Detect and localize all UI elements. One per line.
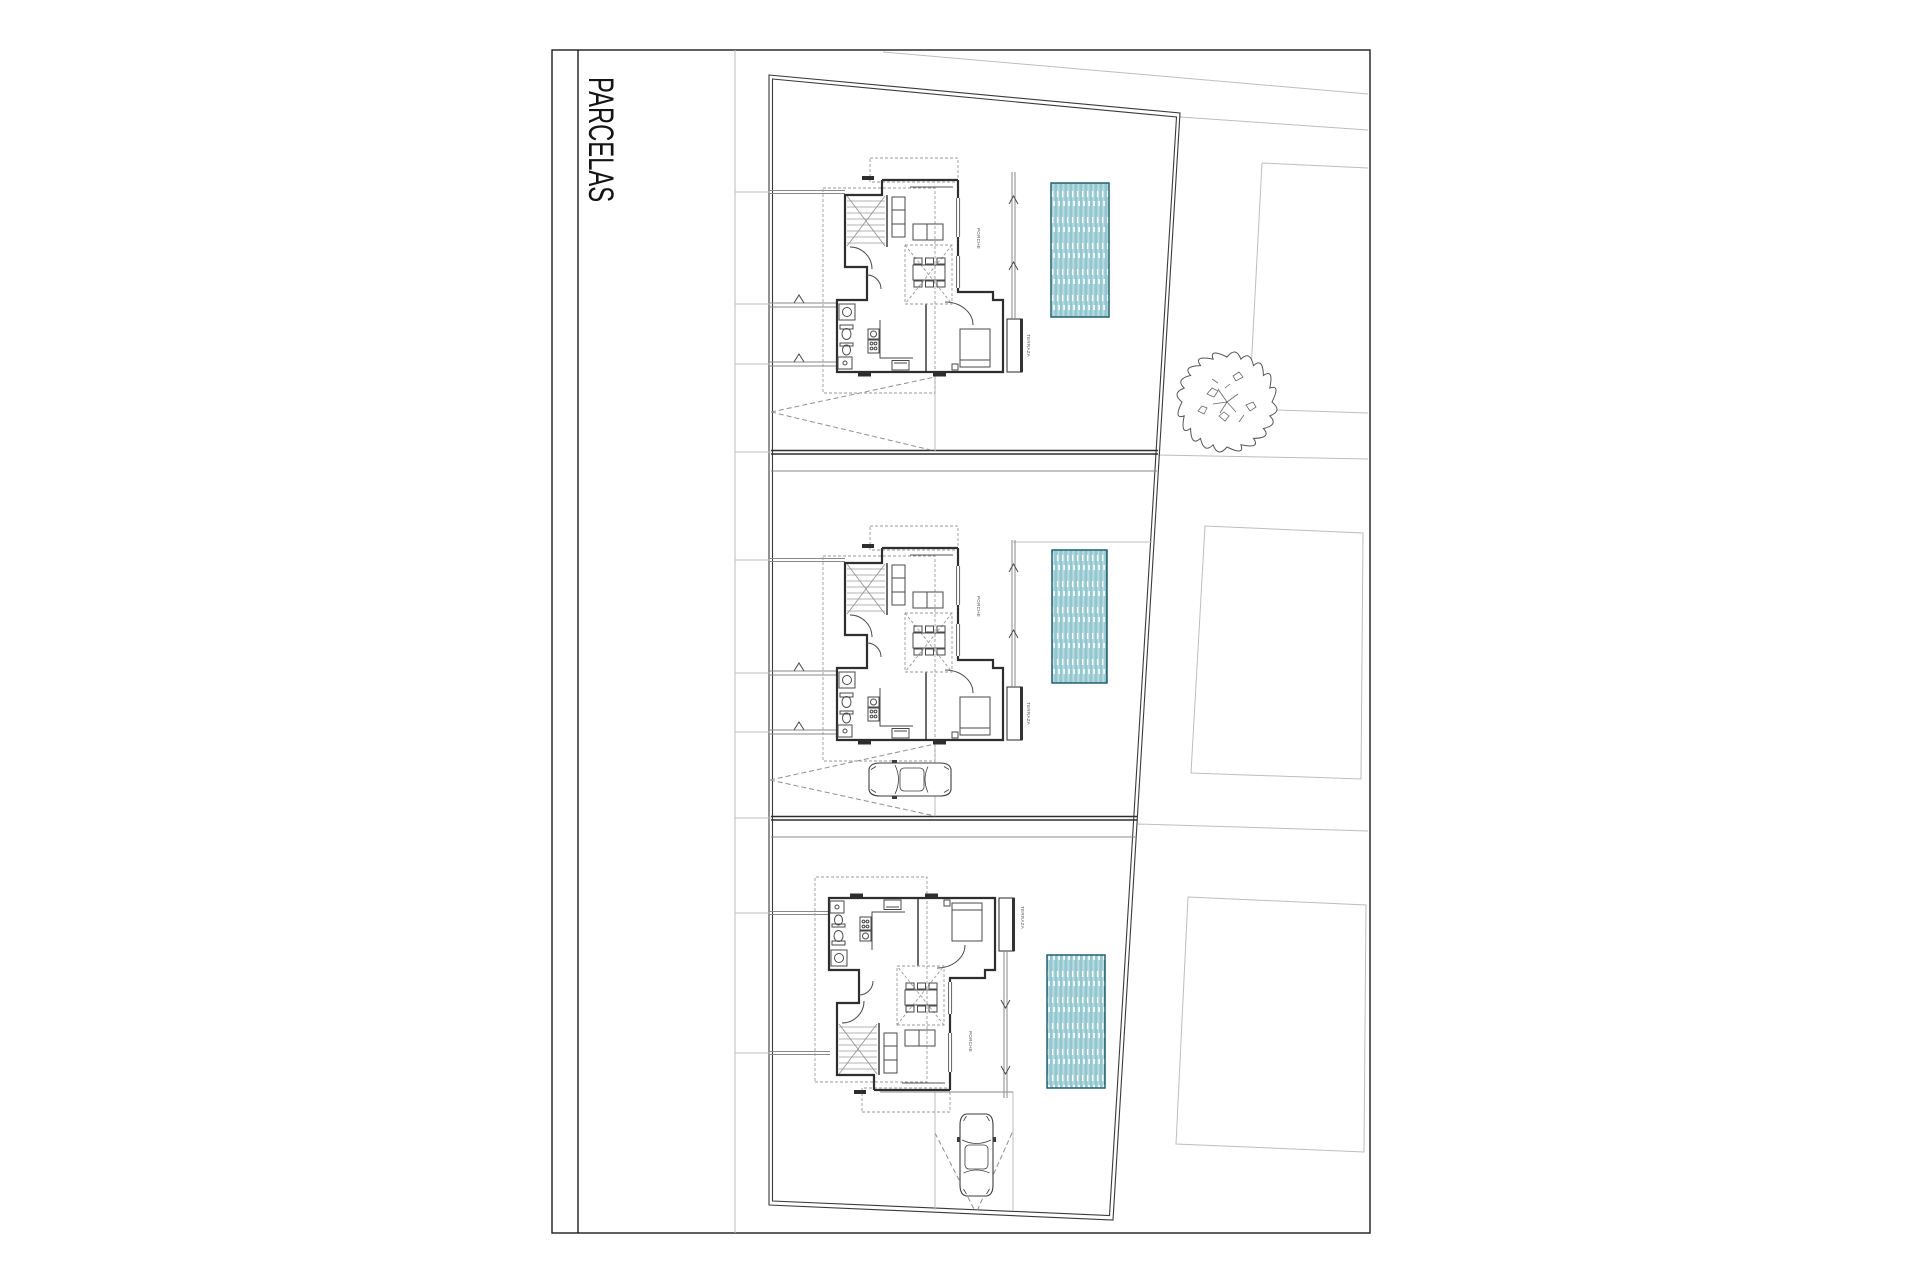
parcel-3: PORCHE TERRAZA [735,877,1105,1211]
house-plan-1 [823,158,1022,393]
porch-label-1: PORCHE [976,228,981,249]
sheet-frame [552,50,1370,1233]
car-icon-parcel-3 [957,1114,996,1196]
terrace-label-1: TERRAZA [1026,334,1031,357]
page-title: PARCELAS [581,77,620,202]
neighbor-parcel-lines [883,52,1368,1152]
porch-label-3: PORCHE [968,1031,973,1052]
terrace-label-2: TERRAZA [1026,702,1031,725]
pool-3 [1047,955,1105,1088]
parcel-2: PORCHE TERRAZA [735,526,1152,816]
pool-1 [1051,183,1109,317]
tree-icon [1177,352,1277,452]
parcel-1: PORCHE TERRAZA [735,158,1109,451]
house-plan-2 [823,526,1022,761]
pool-2 [1052,550,1107,683]
site-boundary [769,75,1180,1220]
drawing-sheet: PARCELAS [0,0,1920,1280]
driveway-sightlines-1 [771,377,935,451]
car-icon-parcel-2 [869,760,951,799]
parcel-divider-1-2 [735,451,1158,472]
neighbor-plot-bottom [1176,897,1366,1152]
parcel-divider-2-3 [735,817,1138,838]
porch-label-2: PORCHE [976,596,981,617]
house-plan-3 [815,877,1014,1112]
site-plan-drawing: PARCELAS [0,0,1920,1280]
terrace-label-3: TERRAZA [1020,906,1025,929]
neighbor-plot-middle [1191,526,1363,779]
